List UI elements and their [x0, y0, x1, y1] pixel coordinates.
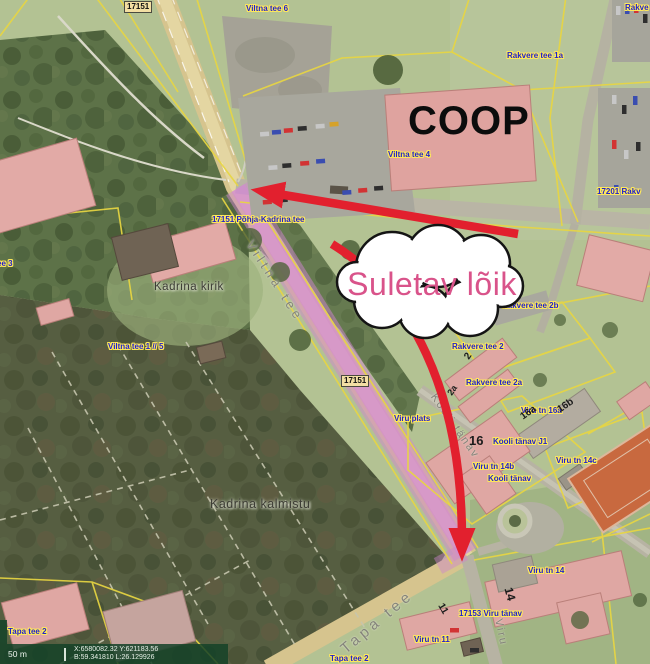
scale-tick [64, 648, 66, 661]
scalebar-end-mark [0, 620, 7, 644]
map-status-bar: 50 m X:6580082.32 Y:621183.56 B:59.34181… [0, 644, 228, 664]
coordinates-bl: B:59.341810 L:26.129926 [74, 654, 158, 662]
coordinates-xy: X:6580082.32 Y:621183.56 [74, 646, 158, 654]
address-label: Viltna tee 6 [246, 5, 288, 13]
address-label: Kooli tänav [488, 475, 531, 483]
address-label: Rakvere tee 2 [452, 343, 504, 351]
address-label: Rakvere tee 2b [502, 302, 558, 310]
coop-store-label: COOP [408, 100, 530, 142]
scale-label: 50 m [8, 649, 64, 659]
cemetery-label: Kadrina kalmistu [210, 498, 310, 511]
road-name-label-17201: 17201 Rakv [597, 188, 641, 196]
address-label: Viru tn 11 [414, 636, 450, 644]
address-label: Viru plats [394, 415, 430, 423]
map-viewport[interactable]: Viltna tee 6 Rakve Rakvere tee 1a Viltna… [0, 0, 650, 664]
address-label: Tapa tee 2 [8, 628, 47, 636]
address-label: Viru tn 14b [473, 463, 514, 471]
road-name-label-17153: 17153 Viru tänav [459, 610, 522, 618]
address-label: Kooli tänav J1 [493, 438, 547, 446]
address-label: Viltna tee 1 // 5 [108, 343, 163, 351]
address-label: Viru tn 14 [528, 567, 564, 575]
address-label: ee 3 [0, 260, 13, 268]
church-label: Kadrina kirik [154, 281, 224, 293]
cursor-coordinates: X:6580082.32 Y:621183.56 B:59.341810 L:2… [74, 646, 158, 662]
address-label: Viru tn 14c [556, 457, 597, 465]
address-label: Rakvere tee 1a [507, 52, 563, 60]
road-number-box: 17151 [341, 375, 369, 387]
road-number-box: 17151 [124, 1, 152, 13]
address-label: Viltna tee 4 [388, 151, 430, 159]
aerial-map-canvas[interactable] [0, 0, 650, 664]
road-name-label-17151: 17151 Põhja-Kadrina tee [212, 216, 304, 224]
building-number: 16 [469, 434, 483, 448]
address-label: Rakve [625, 4, 649, 12]
closed-section-callout-text: Suletav lõik [342, 266, 522, 303]
address-label: Rakvere tee 2a [466, 379, 522, 387]
